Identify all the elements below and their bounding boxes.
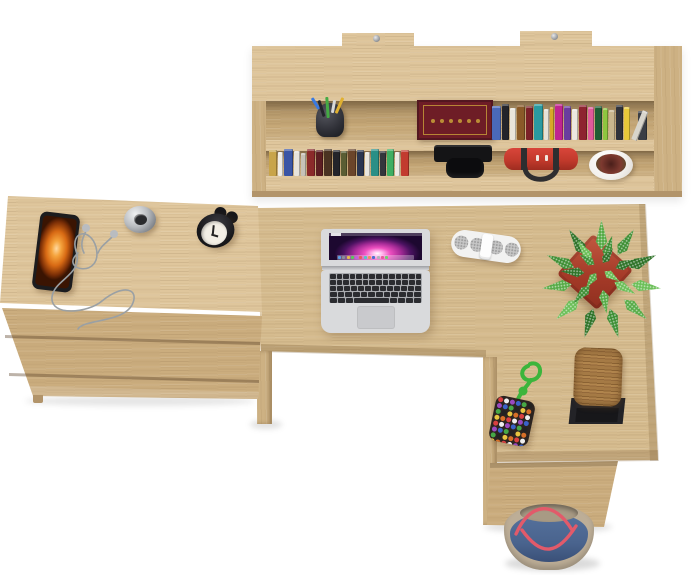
bead	[504, 398, 510, 404]
dock-icon	[368, 256, 371, 259]
key	[396, 274, 402, 279]
tote-bag	[498, 496, 602, 575]
shelf-top-panel	[252, 46, 682, 101]
dock-icon	[364, 256, 367, 259]
screw-icon	[373, 35, 380, 42]
book-spine	[341, 151, 347, 176]
bead	[526, 409, 532, 415]
pocket-watch	[124, 206, 156, 233]
book-spine	[395, 152, 400, 176]
book-spine	[401, 150, 409, 176]
bead	[501, 410, 507, 416]
key	[414, 298, 421, 303]
key	[399, 292, 406, 297]
key	[330, 280, 336, 285]
shelf-left-cap	[252, 101, 266, 197]
flat-book-gold-ornament	[429, 110, 481, 132]
keychain-pouch	[488, 394, 537, 447]
key	[337, 280, 343, 285]
cactus-leaf	[541, 277, 573, 296]
bead	[508, 405, 514, 411]
book-spine	[278, 152, 283, 176]
cabinet-foot	[33, 395, 43, 403]
book-spine	[269, 150, 277, 176]
gold-dot	[440, 119, 444, 123]
book-row-upper	[492, 102, 656, 140]
key	[391, 292, 398, 297]
bead	[520, 408, 526, 414]
book-spine	[624, 107, 630, 140]
key	[363, 274, 369, 279]
bead	[496, 433, 502, 439]
book-spine	[357, 150, 364, 176]
display-menubar	[329, 233, 422, 236]
pocket-watch-center	[134, 214, 147, 225]
cord-knot	[519, 387, 528, 396]
bead	[515, 431, 521, 437]
bead	[510, 424, 516, 430]
dock-icon	[342, 256, 345, 259]
key	[369, 274, 375, 279]
book-spine	[517, 105, 525, 140]
key	[330, 298, 337, 303]
bead	[501, 440, 507, 446]
key	[398, 298, 405, 303]
gold-dot	[476, 119, 480, 123]
book-spine	[348, 149, 356, 176]
keyboard-row	[330, 292, 421, 297]
handbag-stitch	[545, 155, 548, 161]
speaker-clip	[479, 233, 493, 259]
gold-dot	[467, 119, 471, 123]
key	[389, 274, 395, 279]
key	[361, 292, 368, 297]
book-spine	[550, 107, 554, 140]
shelf-right-cap	[654, 46, 682, 197]
dock-icon	[355, 256, 358, 259]
ornate-flat-book	[417, 100, 493, 140]
bead	[495, 408, 501, 414]
bead	[513, 412, 519, 418]
display-dock	[337, 255, 414, 260]
bead	[509, 430, 515, 436]
bead	[509, 399, 515, 405]
book-spine	[307, 149, 315, 176]
bead	[504, 423, 510, 429]
handbag-stitch	[536, 155, 539, 161]
bead	[515, 400, 521, 406]
bead	[507, 411, 513, 417]
pen	[335, 97, 345, 114]
key	[351, 286, 357, 291]
bead	[497, 427, 503, 433]
key	[383, 274, 389, 279]
bead	[490, 432, 496, 438]
screw-icon	[551, 33, 558, 40]
key	[380, 286, 386, 291]
bead	[522, 426, 528, 432]
book-spine	[609, 110, 615, 140]
cactus-leaves	[544, 198, 644, 302]
bead	[525, 415, 531, 421]
dock-icon	[351, 256, 354, 259]
key	[365, 286, 371, 291]
keyboard-row	[330, 274, 421, 279]
dock-icon	[385, 256, 388, 259]
key	[415, 286, 421, 291]
dock-icon	[377, 256, 380, 259]
key	[330, 274, 336, 279]
bead	[495, 439, 501, 445]
gold-dot	[458, 119, 462, 123]
key	[356, 274, 362, 279]
laptop-macbook	[321, 229, 430, 333]
dock-icons	[338, 256, 388, 259]
key	[408, 286, 414, 291]
book-spine	[510, 108, 516, 140]
bead	[521, 432, 527, 438]
book-spine	[284, 149, 293, 176]
key	[409, 274, 415, 279]
pen	[325, 97, 329, 118]
bead	[496, 403, 502, 409]
earbud-right	[110, 230, 118, 238]
bead	[506, 417, 512, 423]
book-spine	[371, 149, 379, 176]
book-spine	[301, 153, 306, 176]
key	[387, 286, 393, 291]
bead	[491, 426, 497, 432]
key	[414, 292, 421, 297]
key	[384, 292, 391, 297]
book-spine	[616, 105, 623, 140]
rustic-wood-cube	[573, 347, 623, 407]
dock-icon	[381, 256, 384, 259]
bead	[520, 438, 526, 444]
key	[416, 274, 422, 279]
key	[356, 280, 362, 285]
red-handbag	[504, 148, 578, 186]
bead	[523, 421, 529, 427]
handbag-handle	[504, 148, 578, 186]
beaded-keychain	[490, 358, 548, 446]
dock-icon	[372, 256, 375, 259]
bead	[494, 414, 500, 420]
bead	[516, 425, 522, 431]
bead	[503, 429, 509, 435]
cactus-leaf	[611, 225, 640, 258]
key	[416, 280, 422, 285]
gold-dot	[431, 119, 435, 123]
bead	[519, 413, 525, 419]
key	[330, 292, 337, 297]
key	[337, 274, 343, 279]
red-succulent	[596, 154, 626, 174]
key	[344, 286, 350, 291]
book-spine	[572, 109, 578, 140]
spacebar-key	[354, 298, 389, 303]
bead	[500, 416, 506, 422]
key	[338, 292, 345, 297]
camera-lens	[446, 158, 484, 178]
key	[409, 280, 415, 285]
bead	[514, 437, 520, 443]
bead	[489, 438, 495, 444]
bead	[512, 418, 518, 424]
key	[363, 280, 369, 285]
key	[372, 286, 378, 291]
display-menubar-apple	[331, 233, 341, 236]
dock-icon	[338, 256, 341, 259]
camera	[434, 145, 492, 179]
key	[402, 280, 408, 285]
key	[337, 286, 343, 291]
book-spine	[595, 106, 602, 140]
pen-cup	[316, 103, 344, 137]
tote-handles	[498, 496, 602, 575]
book-spine	[544, 109, 549, 140]
book-spine	[492, 106, 501, 140]
book-spine	[579, 105, 587, 140]
earbud-left	[82, 224, 90, 232]
book-spine	[534, 104, 543, 140]
book-spine	[588, 107, 594, 140]
key	[407, 292, 414, 297]
key	[394, 286, 400, 291]
key	[368, 292, 375, 297]
scene-top-view-home-office	[0, 0, 700, 575]
bead	[493, 420, 499, 426]
book-spine	[555, 104, 563, 140]
book-spine	[603, 108, 608, 140]
black-stand-base	[575, 408, 618, 422]
key	[376, 292, 383, 297]
book-spine	[324, 149, 332, 176]
gold-dot	[449, 119, 453, 123]
white-pot-plant	[589, 150, 633, 180]
bead	[521, 402, 527, 408]
book-spine	[564, 106, 571, 140]
key	[390, 298, 397, 303]
key	[350, 280, 356, 285]
key	[350, 274, 356, 279]
speaker-grille	[504, 242, 520, 258]
book-spine	[380, 151, 386, 176]
shelf-mount-tab-right	[520, 31, 592, 46]
bead	[508, 436, 514, 442]
key	[401, 286, 407, 291]
key	[330, 286, 336, 291]
bead	[502, 434, 508, 440]
pens-in-cup	[310, 95, 350, 115]
book-row-lower	[269, 148, 421, 176]
keyboard-row	[330, 298, 421, 303]
key	[343, 274, 349, 279]
book-spine	[365, 152, 370, 176]
key	[345, 292, 352, 297]
bead	[517, 419, 523, 425]
key	[396, 280, 402, 285]
key	[383, 280, 389, 285]
book-spine	[333, 150, 340, 176]
laptop-display	[329, 233, 422, 260]
book-spine	[316, 150, 323, 176]
bead	[514, 406, 520, 412]
book-spine	[526, 106, 533, 140]
key	[358, 286, 364, 291]
key	[346, 298, 353, 303]
keyboard-row	[330, 286, 421, 291]
key	[369, 280, 375, 285]
bead	[499, 421, 505, 427]
key	[376, 280, 382, 285]
key	[389, 280, 395, 285]
cactus-plant-potted	[544, 198, 644, 310]
key	[338, 298, 345, 303]
clock-hand-hour	[211, 234, 218, 238]
laptop-trackpad	[357, 306, 395, 329]
key	[402, 274, 408, 279]
book-spine	[294, 151, 300, 176]
laptop-keyboard	[329, 273, 422, 303]
key	[376, 274, 382, 279]
bead	[502, 404, 508, 410]
key	[343, 280, 349, 285]
book-spine	[502, 104, 509, 140]
key	[353, 292, 360, 297]
dock-icon	[359, 256, 362, 259]
dock-icon	[347, 256, 350, 259]
speaker-grille	[453, 235, 469, 251]
bead	[498, 397, 504, 403]
bead	[527, 403, 533, 409]
keyboard-row	[330, 280, 421, 285]
key	[406, 298, 413, 303]
wood-block-decor	[566, 348, 630, 432]
book-spine	[387, 149, 394, 176]
shelf-bottom-edge	[252, 191, 682, 197]
